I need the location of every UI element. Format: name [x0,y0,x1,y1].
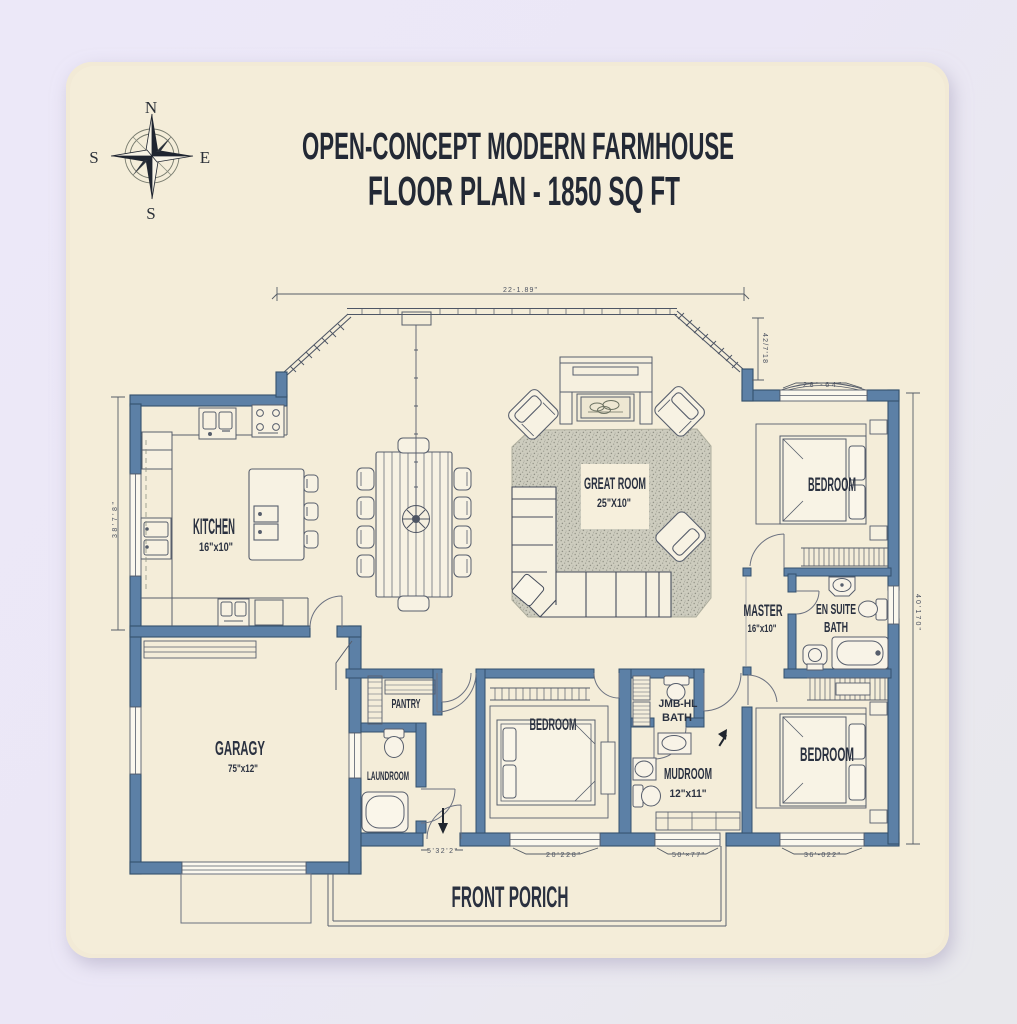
svg-text:40'170": 40'170" [914,594,921,631]
svg-text:PANTRY: PANTRY [392,696,421,711]
svg-text:12"x11": 12"x11" [670,788,707,800]
svg-text:JMB-HL: JMB-HL [659,698,698,710]
svg-text:MASTER: MASTER [744,602,783,620]
svg-text:FLOOR PLAN - 1850 SQ FT: FLOOR PLAN - 1850 SQ FT [368,168,680,214]
svg-text:MUDROOM: MUDROOM [664,766,712,783]
svg-text:GARAGY: GARAGY [215,738,265,760]
svg-text:GREAT ROOM: GREAT ROOM [584,474,646,493]
svg-text:OPEN-CONCEPT MODERN FARMHOUSE: OPEN-CONCEPT MODERN FARMHOUSE [302,126,734,168]
svg-text:5'32'2": 5'32'2" [427,848,458,855]
svg-text:BEDROOM: BEDROOM [800,745,854,766]
svg-text:36'-022": 36'-022" [804,852,841,859]
svg-text:16"x10": 16"x10" [748,623,777,635]
svg-text:FRONT PORICH: FRONT PORICH [452,881,569,914]
svg-text:75"x12": 75"x12" [228,763,258,775]
svg-text:E: E [200,148,210,167]
svg-text:BEDROOM: BEDROOM [530,716,577,734]
svg-text:50'×77": 50'×77" [672,852,705,859]
svg-text:N: N [145,98,157,117]
svg-text:25"X10": 25"X10" [597,496,631,510]
svg-text:20'228": 20'228" [546,852,581,859]
svg-text:KITCHEN: KITCHEN [193,514,235,539]
svg-text:BEDROOM: BEDROOM [808,475,856,496]
svg-text:LAUNDROOM: LAUNDROOM [367,769,409,783]
svg-text:BATH: BATH [824,619,848,636]
svg-text:16"x10": 16"x10" [199,540,233,554]
svg-text:EN SUITE: EN SUITE [816,601,856,618]
svg-text:22-1.89": 22-1.89" [503,287,538,294]
svg-text:28'-64": 28'-64" [803,382,842,389]
svg-text:BATH: BATH [662,712,692,724]
svg-text:S: S [146,204,155,223]
svg-text:42/7'18: 42/7'18 [761,333,768,363]
svg-text:S: S [89,148,98,167]
